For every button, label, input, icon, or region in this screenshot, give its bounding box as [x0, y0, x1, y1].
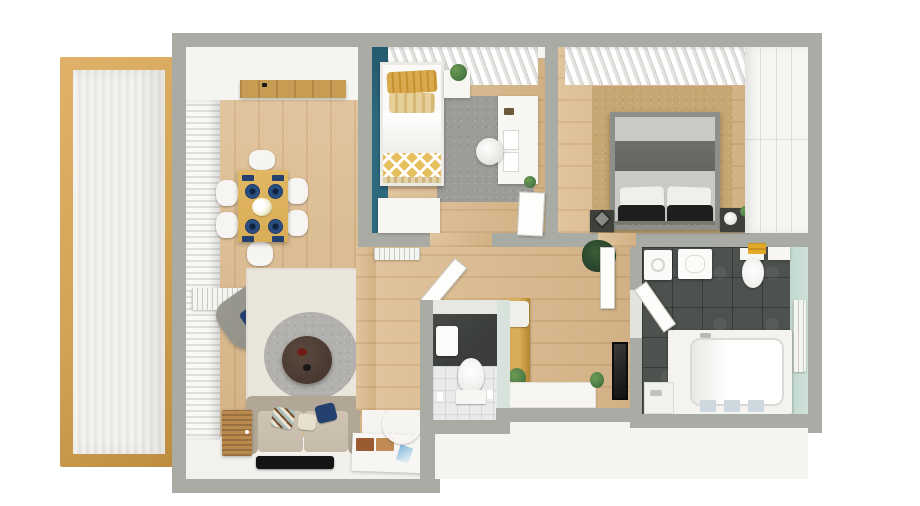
kids-door-opening: [430, 233, 492, 247]
master-bed: [610, 112, 720, 230]
dinner-plate: [268, 184, 283, 199]
wc-toilet-tank: [456, 390, 486, 404]
washing-machine-door: [651, 258, 665, 272]
magazine-brown: [356, 438, 374, 451]
vanity-basin: [685, 255, 705, 273]
kids-bed: [380, 62, 444, 186]
desk-supplies: [504, 108, 514, 115]
flower-centerpiece: [252, 198, 272, 216]
wc-wall-right: [497, 300, 510, 420]
napkin: [272, 175, 284, 181]
master-wardrobe: [745, 47, 808, 233]
shower-tray: [644, 382, 674, 414]
kids-pillow-cream: [389, 93, 435, 113]
wc-interior: [433, 314, 497, 420]
napkin: [242, 236, 254, 242]
bathroom-radiator: [793, 300, 806, 372]
apartment-floor-plan: [0, 0, 920, 506]
master-throw-blanket: [615, 141, 715, 171]
sofa-pillow-pattern: [270, 406, 296, 430]
kids-door-leaf: [517, 191, 545, 236]
wall-living-kid: [358, 33, 372, 247]
bath-mat: [700, 400, 716, 412]
dining-chair-south: [247, 242, 273, 266]
shelf-hook: [262, 83, 267, 87]
decorative-wheel: [382, 404, 422, 444]
wc-bottle-left: [437, 392, 443, 401]
wc-washbasin: [436, 326, 458, 356]
balcony-floor: [73, 70, 165, 454]
wall-bottom-bath: [630, 414, 822, 428]
bathtub-basin: [690, 338, 784, 406]
balcony: [60, 57, 178, 467]
dining-chair-north: [249, 150, 275, 170]
sofa-pillow-cream: [297, 413, 317, 431]
hall-small-plant: [590, 372, 604, 388]
wall-living-wc-connector: [420, 420, 435, 493]
kids-blanket-fringe: [383, 177, 441, 186]
master-door-leaf: [600, 247, 615, 309]
dining-wall-shelf: [240, 80, 346, 98]
wall-bottom-hall: [496, 408, 636, 422]
master-headboard-bench: [615, 221, 715, 230]
dinner-plate: [268, 219, 283, 234]
dining-chair-east2: [286, 210, 308, 236]
hallway-radiator: [374, 248, 420, 260]
shower-fittings: [650, 390, 662, 396]
dinner-plate: [245, 184, 260, 199]
wall-top: [172, 33, 822, 47]
wall-kid-master: [545, 33, 558, 233]
hall-mirror: [612, 342, 628, 400]
bath-mat: [748, 400, 764, 412]
desk-paper1: [503, 130, 519, 150]
napkin: [242, 175, 254, 181]
wc-wall-left: [420, 300, 433, 434]
desk-paper2: [503, 152, 519, 172]
coffee-table: [282, 336, 332, 384]
table-decor-dark: [303, 364, 311, 371]
wc-bottle-right: [487, 390, 493, 399]
kids-duvet-white: [383, 113, 441, 153]
living-window-blinds: [186, 100, 220, 440]
yellow-towels: [748, 243, 766, 254]
bathroom-shelf: [768, 247, 790, 260]
dining-chair-east1: [286, 178, 308, 204]
kids-pillow-mustard: [386, 70, 437, 95]
napkin: [272, 236, 284, 242]
kids-dresser: [378, 198, 440, 233]
kids-nightstand-plant: [450, 64, 467, 81]
desk-plant: [524, 176, 536, 188]
wall-bottom-living: [172, 479, 440, 493]
master-window-curtain: [565, 47, 745, 85]
dining-chair-west2: [216, 212, 238, 238]
bathroom-toilet-bowl: [742, 258, 764, 288]
wc-toilet-bowl: [458, 358, 484, 392]
nightstand-lamp: [724, 212, 737, 225]
bathtub-faucet: [700, 333, 711, 338]
bath-mat: [724, 400, 740, 412]
tv-screen: [256, 456, 334, 469]
cabinet-knob: [245, 430, 249, 434]
wall-left: [172, 33, 186, 493]
hall-living-connector: [356, 247, 376, 410]
dining-chair-west1: [216, 180, 238, 206]
table-decor-red: [297, 348, 307, 356]
dinner-plate: [245, 219, 260, 234]
kids-desk-chair: [476, 138, 503, 165]
